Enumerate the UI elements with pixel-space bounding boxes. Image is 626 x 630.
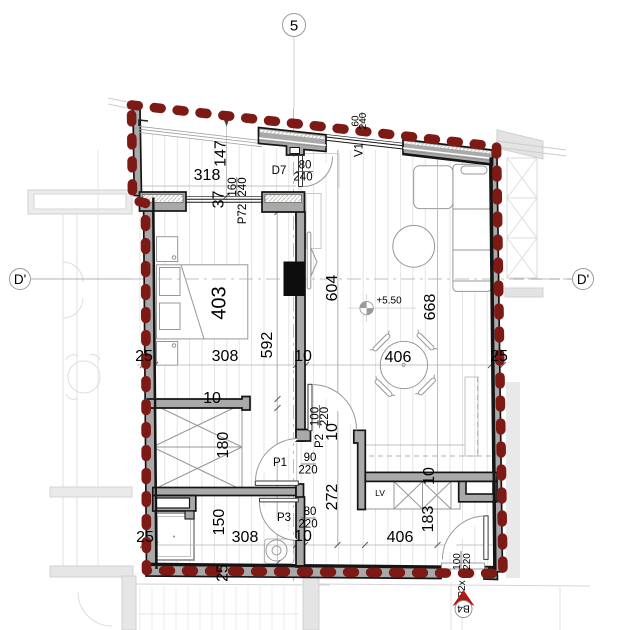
- svg-text:25: 25: [490, 348, 508, 365]
- svg-text:308: 308: [232, 529, 259, 546]
- svg-text:240: 240: [293, 172, 312, 184]
- svg-text:406: 406: [385, 349, 412, 366]
- svg-text:220: 220: [319, 407, 331, 426]
- svg-text:318: 318: [194, 167, 221, 184]
- svg-text:272: 272: [324, 484, 341, 511]
- svg-text:P72: P72: [237, 204, 249, 224]
- svg-text:10: 10: [294, 528, 312, 545]
- svg-text:P1: P1: [273, 457, 287, 469]
- svg-text:10: 10: [203, 390, 221, 407]
- svg-text:25: 25: [136, 529, 154, 546]
- svg-text:V1: V1: [353, 143, 365, 157]
- svg-text:D': D': [14, 272, 26, 287]
- svg-text:220: 220: [462, 553, 473, 570]
- svg-text:+5.50: +5.50: [376, 296, 402, 307]
- svg-text:10: 10: [294, 348, 312, 365]
- svg-text:D': D': [577, 272, 589, 287]
- svg-text:P2: P2: [314, 434, 326, 448]
- svg-text:5: 5: [290, 18, 298, 35]
- svg-text:403: 403: [209, 286, 231, 319]
- svg-text:604: 604: [324, 275, 341, 302]
- svg-text:10: 10: [421, 467, 438, 485]
- svg-text:180: 180: [215, 432, 232, 459]
- svg-text:P3: P3: [277, 512, 291, 524]
- svg-text:80: 80: [304, 506, 317, 518]
- svg-text:25: 25: [135, 348, 153, 365]
- svg-text:D7: D7: [272, 165, 287, 177]
- svg-text:220: 220: [298, 465, 317, 477]
- svg-text:668: 668: [422, 294, 439, 321]
- svg-text:220: 220: [298, 519, 317, 531]
- svg-text:37: 37: [211, 191, 228, 209]
- svg-text:592: 592: [259, 332, 276, 359]
- svg-text:80: 80: [299, 160, 312, 172]
- svg-text:90: 90: [304, 452, 317, 464]
- svg-text:240: 240: [237, 177, 249, 196]
- svg-text:183: 183: [420, 506, 437, 533]
- svg-text:240: 240: [358, 112, 369, 129]
- svg-text:150: 150: [211, 509, 228, 536]
- svg-text:406: 406: [387, 529, 414, 546]
- svg-text:25: 25: [215, 564, 232, 582]
- svg-text:308: 308: [212, 348, 239, 365]
- svg-text:LV: LV: [375, 488, 385, 498]
- svg-text:B4: B4: [457, 603, 470, 615]
- svg-text:147: 147: [213, 140, 230, 167]
